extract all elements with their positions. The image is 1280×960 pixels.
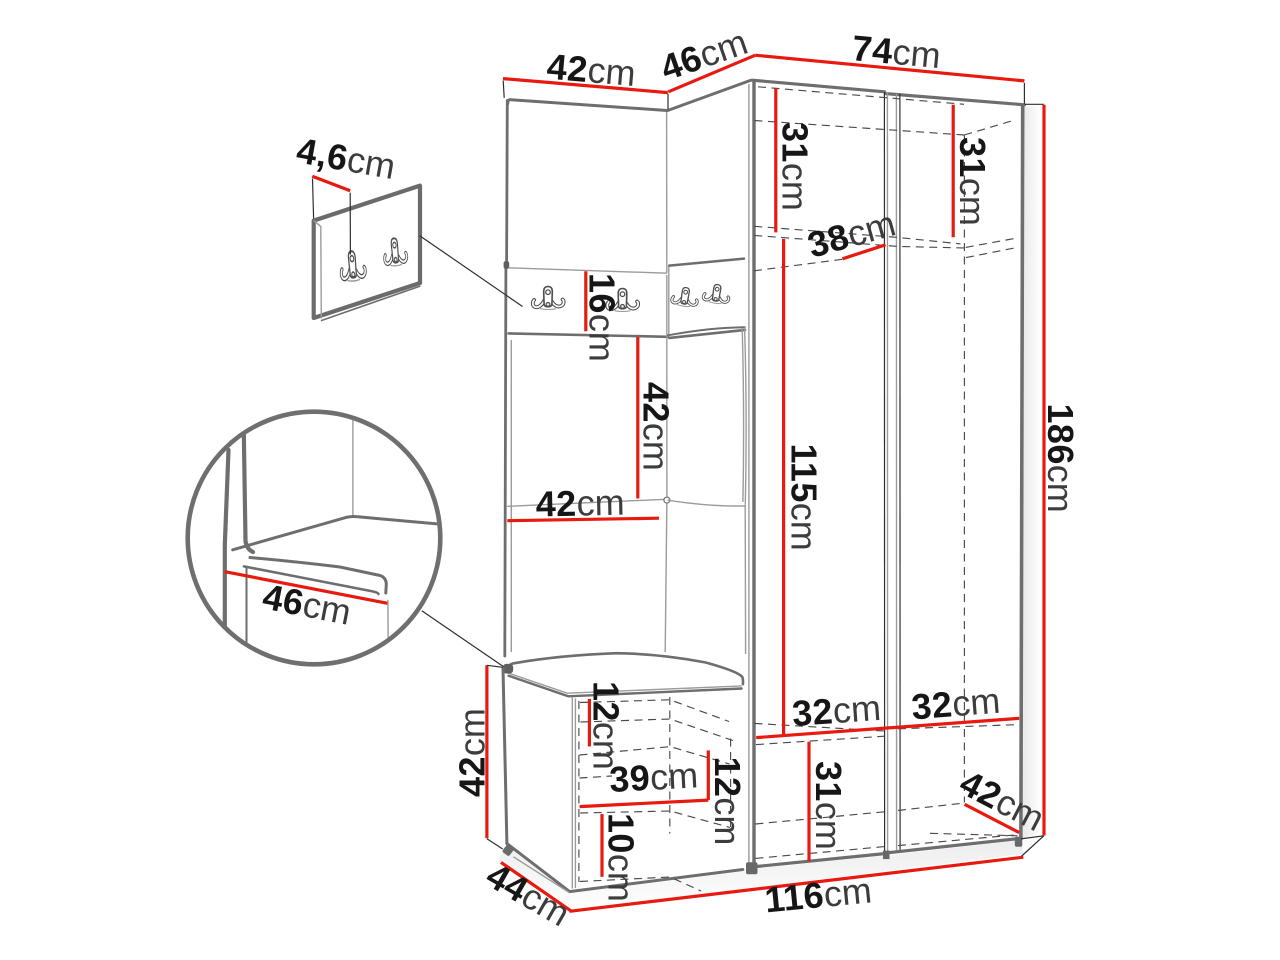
svg-text:12cm: 12cm: [586, 681, 627, 770]
svg-text:12cm: 12cm: [707, 757, 748, 846]
svg-text:42cm: 42cm: [545, 46, 637, 94]
svg-text:186cm: 186cm: [1040, 404, 1081, 513]
svg-text:16cm: 16cm: [582, 273, 623, 362]
svg-text:74cm: 74cm: [850, 27, 942, 76]
svg-text:42cm: 42cm: [535, 482, 625, 525]
svg-text:115cm: 115cm: [784, 444, 825, 551]
svg-text:32cm: 32cm: [910, 680, 1002, 728]
svg-text:42cm: 42cm: [452, 708, 493, 797]
svg-text:10cm: 10cm: [601, 813, 642, 902]
svg-text:32cm: 32cm: [791, 687, 882, 734]
svg-text:31cm: 31cm: [952, 137, 993, 226]
svg-text:31cm: 31cm: [808, 761, 849, 850]
svg-text:39cm: 39cm: [608, 754, 699, 800]
svg-text:31cm: 31cm: [775, 122, 816, 211]
svg-text:42cm: 42cm: [636, 382, 677, 471]
